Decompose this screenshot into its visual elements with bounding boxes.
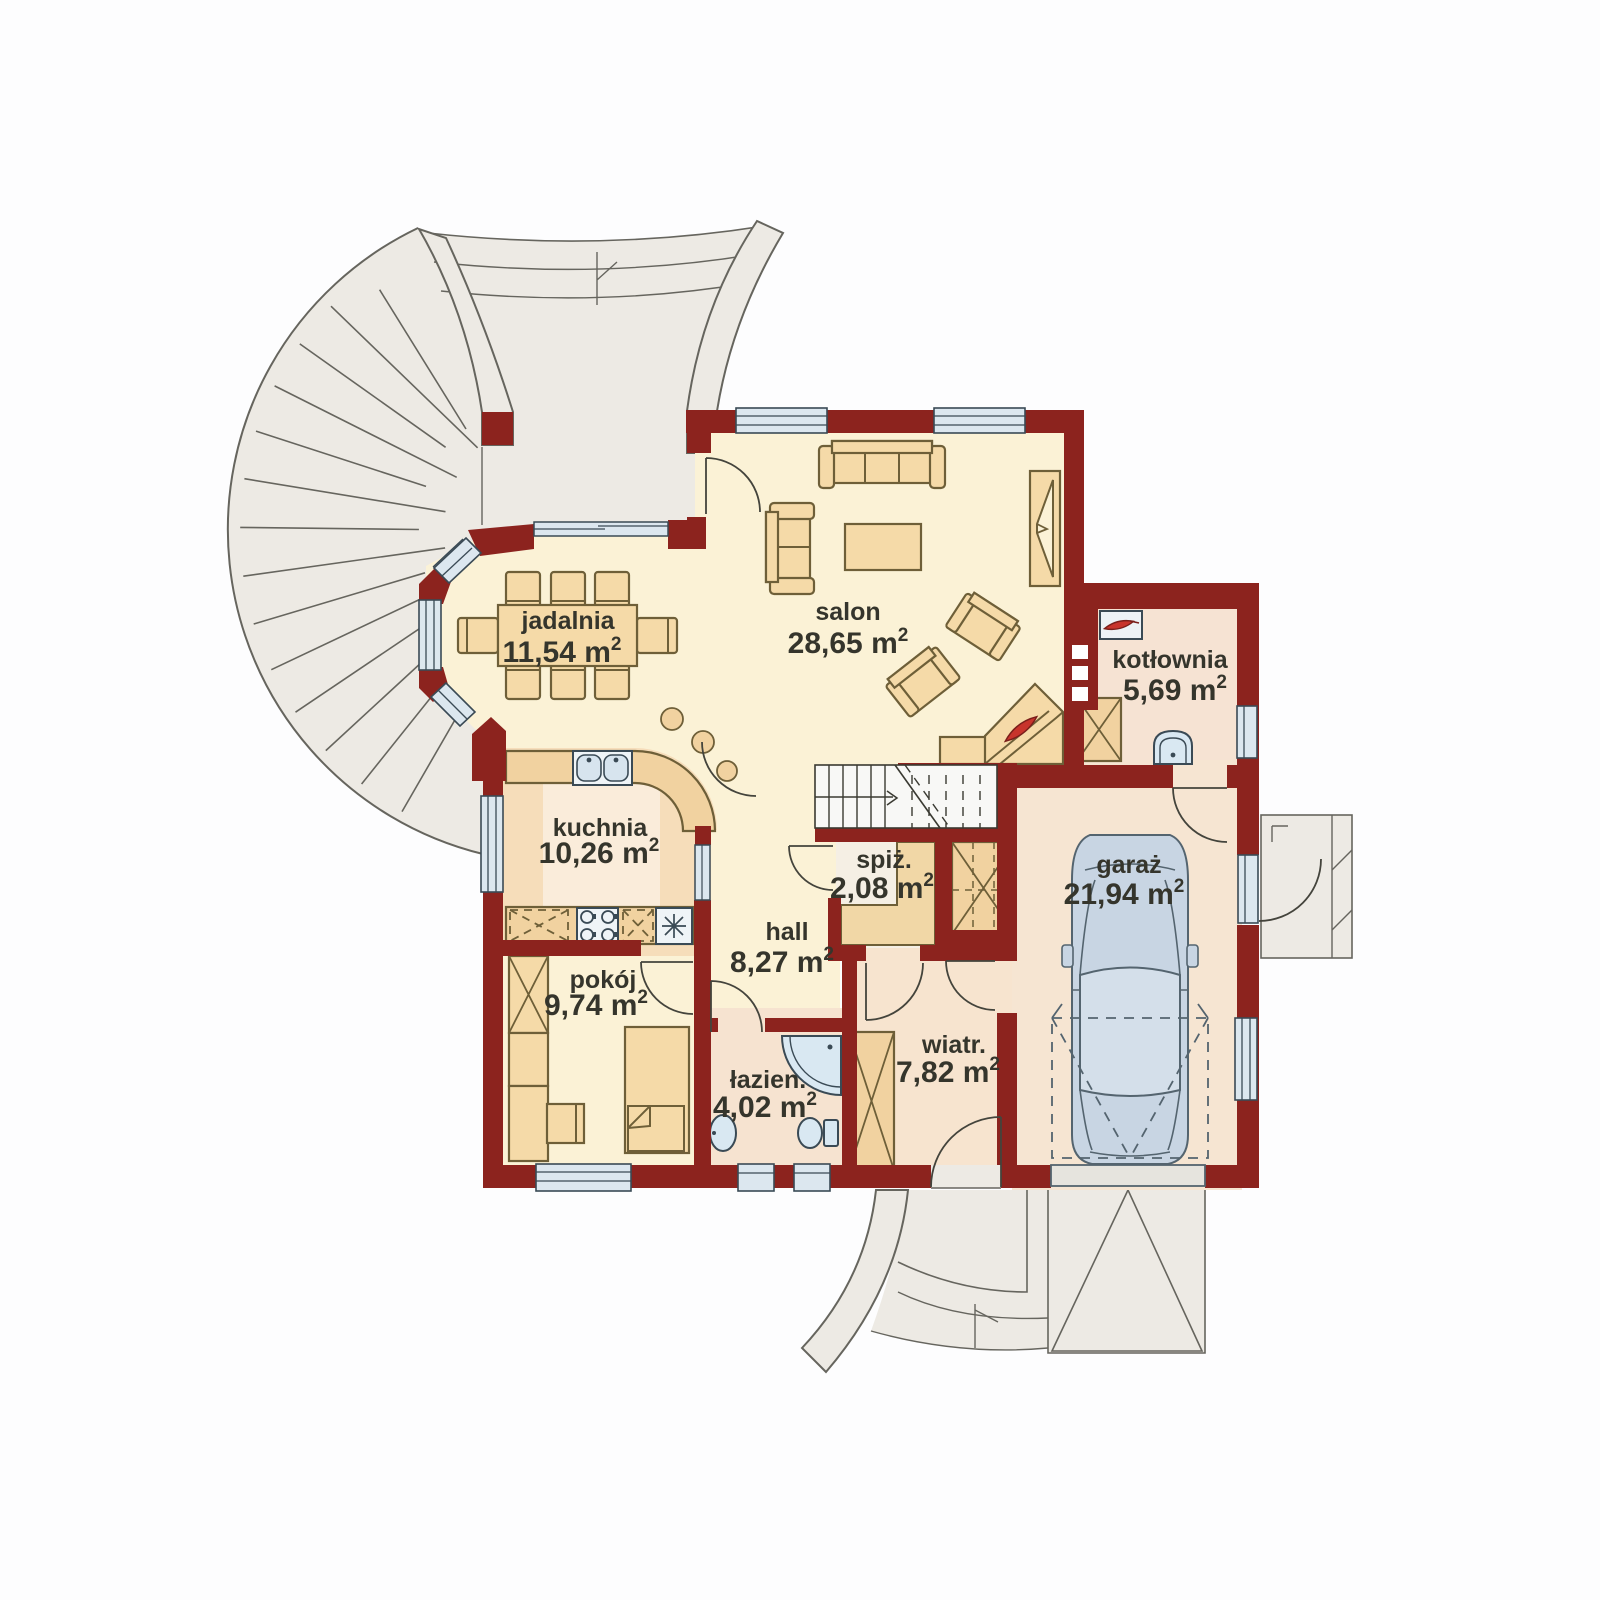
svg-text:28,65 m2: 28,65 m2: [788, 625, 909, 660]
svg-text:hall: hall: [765, 918, 808, 946]
svg-text:5,69 m2: 5,69 m2: [1123, 672, 1227, 707]
svg-text:wiatr.: wiatr.: [921, 1031, 986, 1059]
svg-text:kotłownia: kotłownia: [1112, 646, 1228, 674]
svg-text:jadalnia: jadalnia: [520, 607, 615, 635]
svg-text:salon: salon: [815, 598, 880, 626]
svg-text:11,54 m2: 11,54 m2: [502, 634, 621, 669]
svg-text:21,94 m2: 21,94 m2: [1064, 876, 1185, 911]
svg-text:2,08 m2: 2,08 m2: [830, 870, 934, 905]
svg-text:spiż.: spiż.: [856, 846, 912, 874]
svg-text:10,26 m2: 10,26 m2: [539, 835, 660, 870]
svg-text:łazien.: łazien.: [730, 1066, 806, 1094]
svg-text:7,82 m2: 7,82 m2: [896, 1054, 1000, 1089]
svg-text:8,27 m2: 8,27 m2: [730, 944, 834, 979]
svg-text:9,74 m2: 9,74 m2: [544, 987, 648, 1022]
svg-text:garaż: garaż: [1096, 851, 1161, 879]
svg-text:4,02 m2: 4,02 m2: [713, 1089, 817, 1124]
